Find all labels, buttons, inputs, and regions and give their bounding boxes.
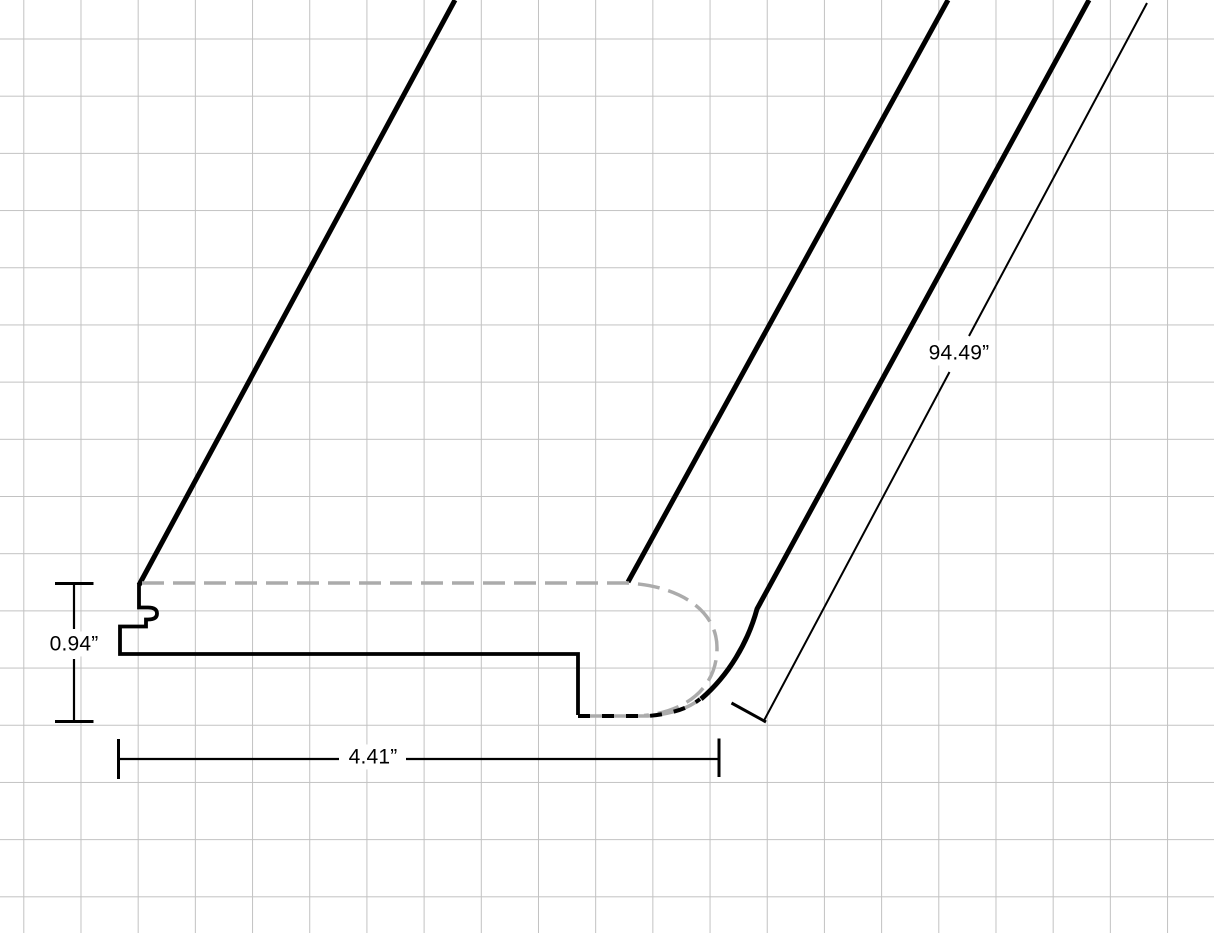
hidden-edge-nose-curve-dashed [142, 583, 717, 716]
length-dim-end-tick [732, 703, 767, 722]
profile-outline-tongue-and-step [120, 583, 578, 715]
length-dimension-label: 94.49” [926, 340, 993, 365]
stair-nose-profile-drawing [0, 0, 1214, 933]
bottom-hidden-edge-black-dashes [578, 699, 700, 716]
board-right-edge-bullnose-curve [701, 0, 1089, 699]
thickness-dimension-label: 0.94” [47, 631, 102, 656]
drawing-canvas: 0.94” 4.41” 94.49” [0, 0, 1214, 933]
width-dimension-label: 4.41” [346, 744, 401, 769]
board-top-inner-edge-line [628, 0, 948, 582]
board-left-edge-line [139, 0, 455, 585]
